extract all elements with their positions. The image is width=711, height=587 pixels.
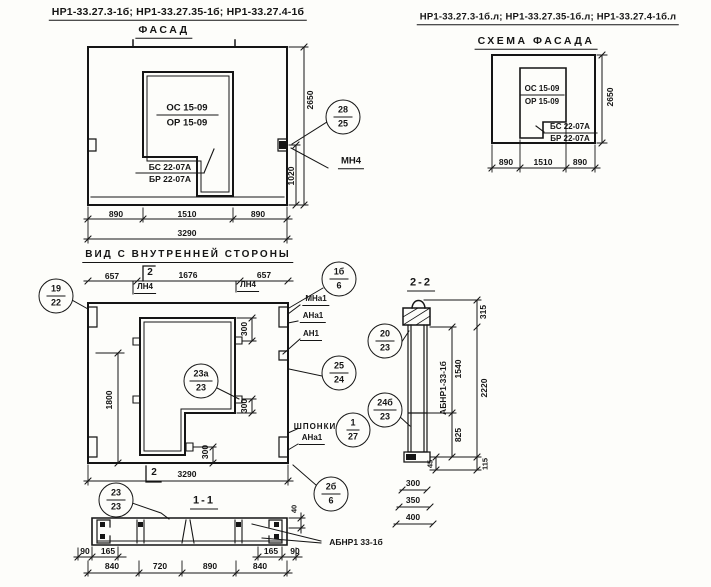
- scheme-dim-890-left: 890: [499, 158, 513, 167]
- section-1-dim-90-left: 90: [80, 547, 89, 556]
- callout-23a-23: 23а 23: [184, 364, 219, 399]
- facade-window-mark-top: ОС 15-09: [166, 103, 207, 113]
- facade-dim-890-left: 890: [109, 210, 123, 219]
- scheme-dim-2650: 2650: [606, 88, 615, 107]
- callout-23-23: 23 23: [99, 483, 134, 518]
- callout-28-25: 28 25: [326, 100, 361, 135]
- scheme-sill-mark-top: БС 22-07А: [550, 123, 590, 131]
- facade-scheme-title: СХЕМА ФАСАДА: [475, 35, 598, 50]
- section-2-dim-315: 315: [479, 305, 488, 319]
- callout-1b-6: 1б 6: [322, 262, 357, 297]
- inner-dim-300-c: 300: [201, 445, 210, 459]
- callout-top: 1б: [330, 268, 349, 280]
- section-2-dim-2220: 2220: [480, 379, 489, 398]
- inner-dim-1676: 1676: [179, 271, 198, 280]
- callout-bottom: 24: [334, 374, 344, 385]
- inner-mna1-label: МНа1: [302, 294, 329, 306]
- inner-dim-657-right: 657: [257, 271, 271, 280]
- callout-bottom: 22: [51, 297, 61, 308]
- callout-1-27: 1 27: [336, 413, 371, 448]
- callout-top: 25: [330, 362, 348, 374]
- callout-top: 1: [346, 419, 359, 431]
- inner-dim-3290: 3290: [178, 470, 197, 479]
- inner-ana1b-label: АНа1: [299, 433, 325, 445]
- inner-ln4-right-label: ЛН4: [237, 280, 259, 292]
- callout-25-24: 25 24: [322, 356, 357, 391]
- inner-shponki-label: ШПОНКИ: [294, 423, 336, 431]
- callout-bottom: 27: [348, 431, 358, 442]
- section-1-1-title: 1-1: [190, 495, 218, 510]
- callout-bottom: 23: [111, 501, 121, 512]
- scheme-window-mark-bottom: ОР 15-09: [525, 98, 559, 106]
- section-2-dim-350: 350: [406, 496, 420, 505]
- facade-sill-mark-top: БС 22-07А: [149, 163, 191, 172]
- section-2-dim-400: 400: [406, 513, 420, 522]
- panel-marks-left: НР1-33.27.3-1б; НР1-33.27.35-1б; НР1-33.…: [49, 6, 307, 21]
- callout-2b-6: 2б 6: [314, 477, 349, 512]
- inner-dim-300-b: 300: [240, 399, 249, 413]
- callout-top: 28: [334, 106, 352, 118]
- inner-view-title: ВИД С ВНУТРЕННЕЙ СТОРОНЫ: [82, 249, 293, 263]
- section-1-dim-165-left: 165: [101, 547, 115, 556]
- scheme-sill-mark-bottom: БР 22-07А: [550, 135, 590, 143]
- callout-top: 19: [47, 285, 65, 297]
- section-1-dim-90-right: 90: [290, 547, 299, 556]
- callout-bottom: 23: [380, 411, 390, 422]
- section-2-dim-115: 115: [481, 458, 489, 470]
- section-1-panel-label: АБНР1 33-1б: [329, 538, 382, 547]
- facade-dim-3290: 3290: [178, 229, 197, 238]
- callout-bottom: 23: [196, 382, 206, 393]
- section-2-dim-45: 45: [426, 460, 434, 468]
- facade-dim-890-right: 890: [251, 210, 265, 219]
- section-1-dim-840-a: 840: [105, 562, 119, 571]
- callout-top: 20: [376, 330, 394, 342]
- callout-bottom: 25: [338, 118, 348, 129]
- inner-section-mark-top: 2: [147, 268, 153, 278]
- inner-section-mark-bottom: 2: [151, 468, 157, 478]
- inner-dim-300-a: 300: [240, 322, 249, 336]
- callout-19-22: 19 22: [39, 279, 74, 314]
- scheme-window-mark-top: ОС 15-09: [525, 85, 560, 93]
- facade-title: ФАСАД: [135, 24, 192, 39]
- callout-bottom: 6: [336, 280, 341, 291]
- facade-window-mark-bottom: ОР 15-09: [167, 118, 208, 128]
- scheme-dim-1510: 1510: [534, 158, 553, 167]
- facade-scheme-linework: [488, 52, 607, 172]
- callout-20-23: 20 23: [368, 324, 403, 359]
- callout-top: 2б: [322, 483, 341, 495]
- inner-view-linework: [72, 266, 410, 485]
- section-2-2-panel-label: АБНР1-33-1б: [439, 361, 448, 415]
- section-2-dim-300: 300: [406, 479, 420, 488]
- drawing-sheet: НР1-33.27.3-1б; НР1-33.27.35-1б; НР1-33.…: [0, 0, 711, 587]
- section-1-dim-840-b: 840: [253, 562, 267, 571]
- inner-dim-1800: 1800: [105, 391, 114, 410]
- scheme-dim-890-right: 890: [573, 158, 587, 167]
- facade-dim-1510: 1510: [178, 210, 197, 219]
- facade-mn4-label: МН4: [338, 155, 364, 169]
- callout-24b-23: 24б 23: [368, 393, 403, 428]
- facade-dim-1020: 1020: [287, 167, 296, 186]
- facade-sill-mark-bottom: БР 22-07А: [149, 175, 191, 184]
- callout-bottom: 23: [380, 342, 390, 353]
- facade-dim-2650: 2650: [306, 91, 315, 110]
- inner-an1-label: АН1: [300, 329, 322, 341]
- panel-marks-right: НР1-33.27.3-1б.л; НР1-33.27.35-1б.л; НР1…: [417, 11, 679, 25]
- callout-top: 23а: [189, 370, 212, 382]
- inner-dim-657-left: 657: [105, 272, 119, 281]
- section-1-dim-40: 40: [290, 505, 298, 513]
- section-2-dim-825: 825: [454, 428, 463, 442]
- inner-ln4-left-label: ЛН4: [134, 282, 156, 294]
- inner-ana1-label: АНа1: [300, 311, 326, 323]
- section-1-dim-165-right: 165: [264, 547, 278, 556]
- section-1-dim-890: 890: [203, 562, 217, 571]
- section-2-dim-1540: 1540: [454, 360, 463, 379]
- section-1-dim-720: 720: [153, 562, 167, 571]
- callout-bottom: 6: [328, 495, 333, 506]
- callout-top: 23: [107, 489, 125, 501]
- section-2-2-title: 2-2: [407, 277, 435, 292]
- callout-top: 24б: [373, 399, 397, 411]
